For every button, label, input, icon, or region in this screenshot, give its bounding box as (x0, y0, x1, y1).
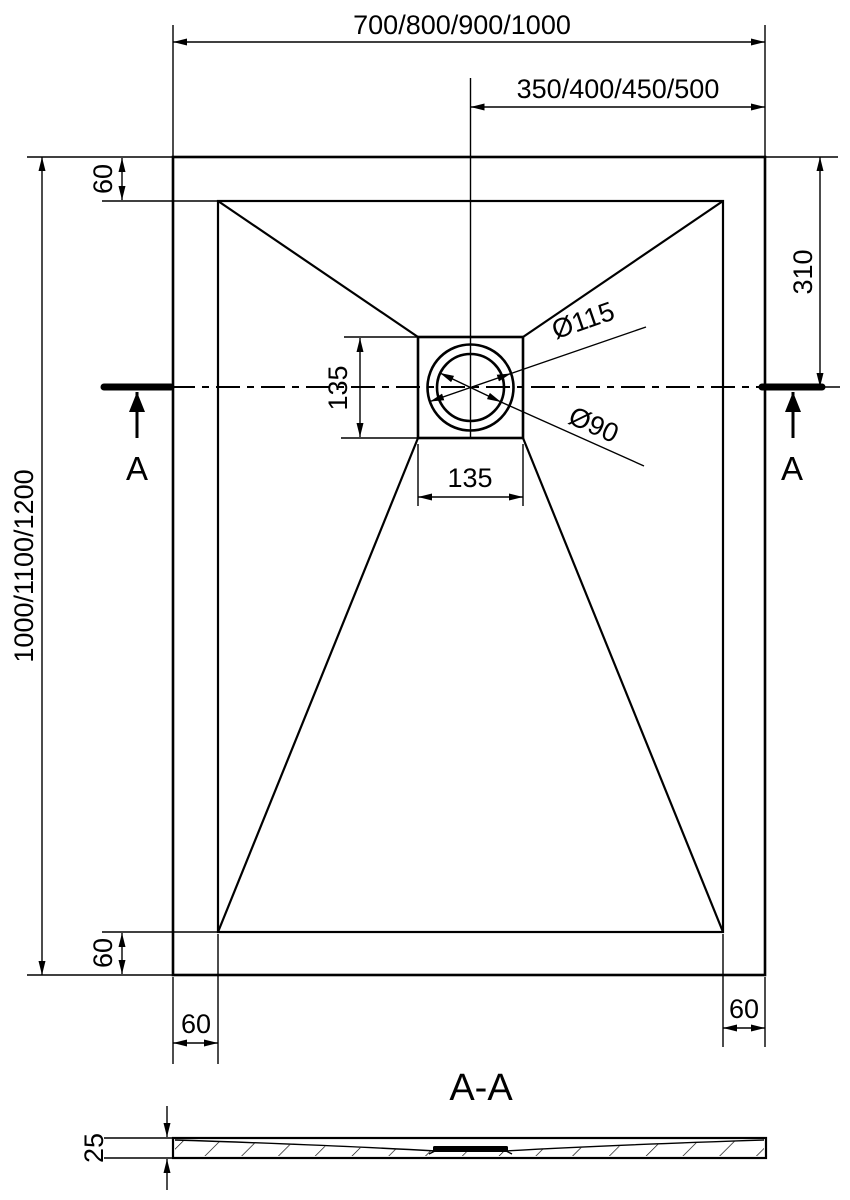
technical-drawing-svg: A A 700/800/900/1000 350/400/450/500 100… (0, 0, 850, 1200)
section-view: A-A 25 (79, 1067, 766, 1190)
dim-rim-bottom-right-label: 60 (729, 994, 759, 1024)
dim-overall-width-label: 700/800/900/1000 (353, 10, 571, 40)
dim-rim-bottom-left-label: 60 (181, 1009, 211, 1039)
section-drain-cover (433, 1146, 508, 1152)
section-marker-left-label: A (126, 450, 148, 487)
dim-overall-length-label: 1000/1100/1200 (9, 469, 39, 662)
section-marker-right-label: A (781, 450, 803, 487)
dim-rim-bottom-label: 60 (88, 938, 118, 968)
plan-view: A A (104, 78, 840, 975)
slope-line-bottom-left (218, 438, 418, 932)
dim-drain-height-label: 135 (323, 365, 353, 410)
dim-center-to-edge-label: 350/400/450/500 (517, 74, 720, 104)
slope-line-top-left (218, 201, 418, 337)
dim-rim-top-label: 60 (88, 164, 118, 194)
tray-outer-outline (173, 157, 765, 975)
dim-drain-outer-dia-label: Ø115 (548, 296, 618, 345)
drawing-sheet: A A 700/800/900/1000 350/400/450/500 100… (0, 0, 850, 1200)
dim-drain-inner-dia-label: Ø90 (564, 401, 623, 449)
section-title: A-A (449, 1067, 513, 1109)
dimensions: 700/800/900/1000 350/400/450/500 1000/11… (9, 10, 838, 1064)
dim-drain-offset-label: 310 (788, 249, 818, 294)
slope-line-bottom-right (523, 438, 723, 932)
dim-drain-width-label: 135 (447, 463, 492, 493)
dim-thickness-label: 25 (79, 1133, 109, 1163)
